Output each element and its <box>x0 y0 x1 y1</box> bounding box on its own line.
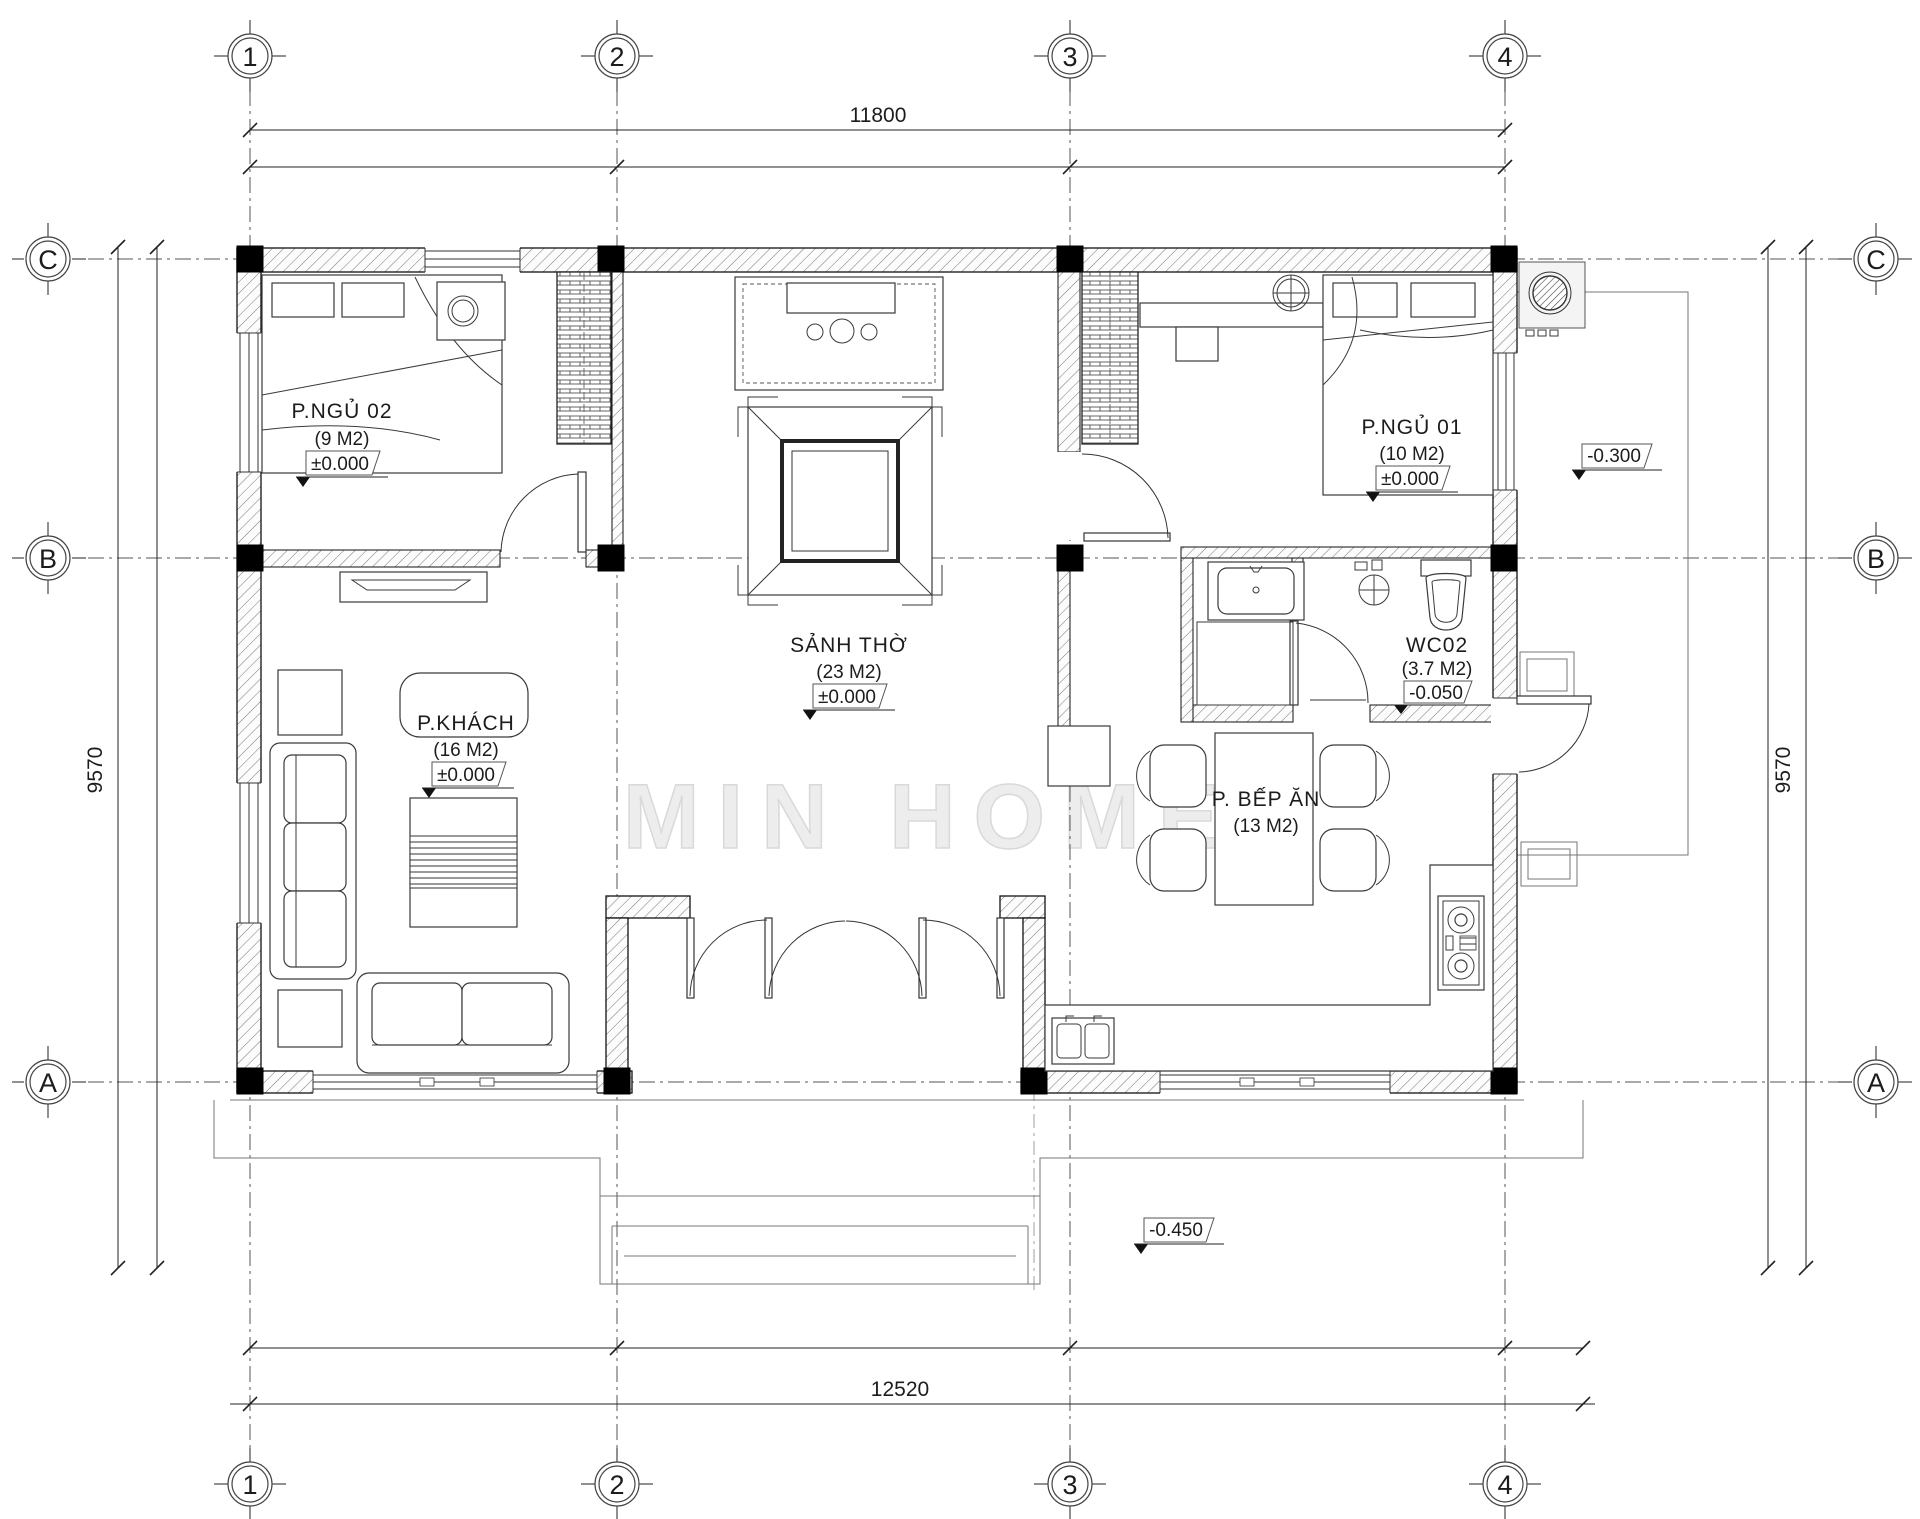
svg-text:C: C <box>1866 245 1886 275</box>
room-name: P.NGỦ 01 <box>1362 415 1463 439</box>
dim-bottom-value: 12520 <box>871 1378 929 1401</box>
svg-text:4: 4 <box>1497 1470 1512 1500</box>
door-entrance-folding <box>687 918 1004 998</box>
dim-top-value: 11800 <box>850 104 907 127</box>
wardrobe-icon <box>557 272 611 444</box>
window-left-living <box>235 783 263 923</box>
room-area: (23 M2) <box>816 662 881 683</box>
dimension-bottom: 12520 <box>230 1341 1595 1411</box>
svg-text:3: 3 <box>1062 1470 1077 1500</box>
room-label-wc: WC02 (3.7 M2) -0.050 <box>1394 634 1480 714</box>
altar-platform-icon <box>738 397 942 605</box>
dimension-left: 9570 <box>84 240 164 1275</box>
dresser-icon <box>437 282 505 340</box>
kitchen-door-landing <box>1521 842 1577 886</box>
room-level: ±0.000 <box>818 687 876 708</box>
dim-left-value: 9570 <box>84 747 107 794</box>
kitchen-sink-icon <box>1052 1016 1114 1064</box>
door-bedroom1 <box>1056 452 1170 541</box>
room-level: ±0.000 <box>1381 469 1439 490</box>
watermark-text: MIN HOME <box>623 766 1237 868</box>
wc-exterior-landing <box>1520 652 1574 698</box>
level-label-porch: -0.450 <box>1134 1218 1224 1254</box>
grid-bubble-A-left: A <box>12 1046 86 1118</box>
dim-right-value: 9570 <box>1772 747 1795 794</box>
grid-bubble-C-left: C <box>12 223 86 295</box>
svg-text:1: 1 <box>242 1470 257 1500</box>
sink-vanity-icon <box>1208 562 1304 620</box>
entry-steps-icon <box>600 1196 1040 1284</box>
wall-wc-bottom-left <box>1193 705 1293 722</box>
ceiling-fan-icon <box>1273 275 1309 311</box>
door-wc <box>1290 621 1368 705</box>
living-furniture <box>270 572 569 1073</box>
svg-text:C: C <box>38 245 58 275</box>
grid-bubble-2-bottom: 2 <box>581 1448 653 1519</box>
grid-bubble-3-top: 3 <box>1034 20 1106 92</box>
grid-bubble-1-bottom: 1 <box>214 1448 286 1519</box>
svg-text:1: 1 <box>242 42 257 72</box>
wall-entry-left-stub <box>606 896 690 918</box>
coffee-table-icon <box>410 798 517 927</box>
side-table-icon <box>278 990 342 1047</box>
level-label-terrace: -0.300 <box>1572 444 1662 480</box>
grid-bubble-4-bottom: 4 <box>1469 1448 1541 1519</box>
room-name: P.KHÁCH <box>417 712 515 735</box>
room-level: ±0.000 <box>437 765 495 786</box>
porch-level: -0.450 <box>1149 1220 1203 1241</box>
altar-console-icon <box>735 277 943 390</box>
floor-plan-drawing: MIN HOME 11800 12520 9570 9570 <box>0 0 1920 1519</box>
wall-bedroom2-bottom-stub <box>586 550 598 567</box>
room-name: P.NGỦ 02 <box>292 399 393 423</box>
vanity-desk-icon <box>1140 303 1323 361</box>
room-label-living: P.KHÁCH (16 M2) ±0.000 <box>417 712 515 798</box>
grid-bubble-3-bottom: 3 <box>1034 1448 1106 1519</box>
ac-unit-icon <box>1519 262 1585 336</box>
svg-text:B: B <box>1867 544 1885 574</box>
dimension-right: 9570 <box>1761 240 1813 1275</box>
svg-text:A: A <box>1867 1068 1885 1098</box>
window-bottom-kitchen <box>1160 1069 1390 1095</box>
wall-porch-flank-right <box>1023 918 1045 1071</box>
room-area: (16 M2) <box>433 740 498 761</box>
room-area: (9 M2) <box>315 429 370 450</box>
shower-icon <box>1197 622 1293 705</box>
door-kitchen-side <box>1491 696 1591 774</box>
hall-furniture <box>735 277 943 605</box>
wall-bedroom2-bottom <box>237 550 500 567</box>
dimension-top: 11800 <box>243 104 1512 174</box>
window-left-bedroom2 <box>235 333 263 472</box>
room-area: (10 M2) <box>1379 444 1444 465</box>
wall-grid3-lower <box>1058 571 1070 731</box>
window-right-bedroom1 <box>1491 353 1519 490</box>
sofa-long-icon <box>270 743 356 979</box>
wall-bedroom2-right <box>612 272 623 547</box>
svg-text:2: 2 <box>609 1470 624 1500</box>
svg-text:3: 3 <box>1062 42 1077 72</box>
grid-bubble-4-top: 4 <box>1469 20 1541 92</box>
toilet-icon <box>1421 560 1471 630</box>
terrace-level: -0.300 <box>1587 446 1641 467</box>
room-name: WC02 <box>1406 634 1468 657</box>
wall-grid3-upper <box>1058 272 1080 452</box>
kitchen-cabinet-icon <box>1048 726 1110 786</box>
room-name: P. BẾP ĂN <box>1212 788 1321 811</box>
room-name: SẢNH THỜ <box>790 634 908 657</box>
room-level: -0.050 <box>1409 683 1463 704</box>
grid-bubble-B-right: B <box>1838 522 1912 594</box>
grid-bubble-2-top: 2 <box>581 20 653 92</box>
wardrobe-icon <box>1082 272 1138 444</box>
wall-wc-top <box>1181 547 1493 558</box>
window-top-bedroom2 <box>425 246 520 274</box>
room-level: ±0.000 <box>311 454 369 475</box>
svg-text:2: 2 <box>609 42 624 72</box>
wall-porch-flank-left <box>606 918 628 1071</box>
wall-entry-right-stub <box>1000 896 1045 918</box>
right-terrace-outline <box>1517 292 1688 855</box>
door-bedroom2 <box>501 472 586 552</box>
stove-icon <box>1438 896 1484 990</box>
svg-text:A: A <box>39 1068 57 1098</box>
room-area: (3.7 M2) <box>1402 659 1473 680</box>
side-table-icon <box>278 670 342 735</box>
grid-bubble-1-top: 1 <box>214 20 286 92</box>
sofa-small-icon <box>357 973 569 1073</box>
grid-bubble-C-right: C <box>1838 223 1912 295</box>
wall-wc-bottom-right <box>1370 705 1493 722</box>
svg-text:B: B <box>39 544 57 574</box>
svg-text:4: 4 <box>1497 42 1512 72</box>
floor-plan-canvas: MIN HOME 11800 12520 9570 9570 <box>0 0 1920 1519</box>
room-label-hall: SẢNH THỜ (23 M2) ±0.000 <box>790 634 908 720</box>
wall-wc-left <box>1181 558 1193 722</box>
room-area: (13 M2) <box>1233 816 1298 837</box>
tv-console-icon <box>340 572 487 602</box>
ceiling-fan-icon <box>1355 560 1389 605</box>
grid-bubble-B-left: B <box>12 522 86 594</box>
grid-bubble-A-right: A <box>1838 1046 1912 1118</box>
